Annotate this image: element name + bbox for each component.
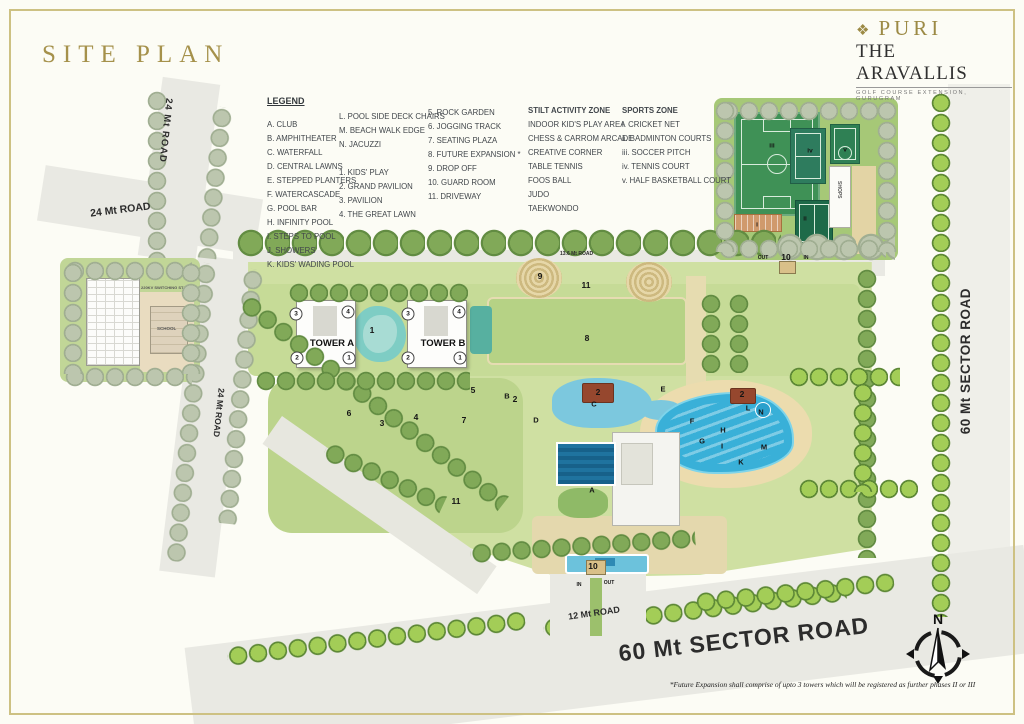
legend-item: J. SHOWERS	[267, 244, 356, 258]
legend-item: i. CRICKET NET	[622, 118, 731, 132]
tree-row	[852, 382, 874, 492]
tower-a-core	[313, 306, 337, 336]
club-roof-detail	[621, 443, 653, 485]
legend-item: JUDO	[528, 188, 633, 202]
legend-item: 5. ROCK GARDEN	[428, 106, 521, 120]
tower-b-core	[424, 306, 448, 336]
tree-row	[288, 282, 468, 304]
brand-name-text: PURI	[878, 16, 942, 40]
legend-item: ii. BADMINTON COURTS	[622, 132, 731, 146]
tree-row	[728, 293, 750, 373]
basketball-half-court	[830, 124, 860, 164]
legend: LEGEND A. CLUBB. AMPHITHEATERC. WATERFAL…	[265, 92, 745, 222]
soccer-goal-box-bottom	[763, 196, 791, 209]
page-title: SITE PLAN	[42, 41, 229, 69]
tree-row	[255, 370, 470, 392]
lap-pool	[556, 442, 616, 486]
legend-item: FOOS BALL	[528, 174, 633, 188]
school-label: SCHOOL	[157, 326, 176, 331]
legend-item: TAEKWONDO	[528, 202, 633, 216]
legend-item: 7. SEATING PLAZA	[428, 134, 521, 148]
drop-off-circle	[626, 262, 672, 302]
tree-row	[62, 262, 84, 374]
legend-item: 1. KIDS' PLAY	[339, 166, 416, 180]
basketball-arc	[838, 146, 852, 160]
future-expansion-footnote: *Future Expansion shall comprise of upto…	[630, 680, 1015, 689]
brand-tagline: GOLF COURSE EXTENSION, GURUGRAM	[856, 90, 1012, 102]
legend-item: 2. GRAND PAVILION	[339, 180, 416, 194]
great-lawn-8	[487, 297, 687, 365]
tennis-court	[790, 128, 826, 184]
legend-item: 11. DRIVEWAY	[428, 190, 521, 204]
legend-item: 10. GUARD ROOM	[428, 176, 521, 190]
legend-title: LEGEND	[267, 96, 305, 106]
diamond-icon: ❖	[856, 23, 873, 39]
legend-item: v. HALF BASKETBALL COURT	[622, 174, 731, 188]
legend-item: 6. JOGGING TRACK	[428, 120, 521, 134]
legend-item: CREATIVE CORNER	[528, 146, 633, 160]
stilt-zone-items: INDOOR KID'S PLAY AREACHESS & CARROM ARC…	[528, 118, 633, 216]
compass-n-label: N	[933, 611, 943, 627]
tree-row	[718, 238, 886, 260]
legend-col-numbers2: 5. ROCK GARDEN6. JOGGING TRACK7. SEATING…	[428, 106, 521, 204]
tree-row	[180, 262, 202, 374]
tree-row	[788, 366, 900, 388]
club-building	[612, 432, 680, 526]
north-arrow-icon: N	[900, 610, 976, 686]
sports-zone-title: SPORTS ZONE	[622, 104, 731, 118]
legend-item: INDOOR KID'S PLAY AREA	[528, 118, 633, 132]
legend-stilt-zone: STILT ACTIVITY ZONE INDOOR KID'S PLAY AR…	[528, 104, 633, 216]
site-plan-poster: SITE PLAN ❖PURI THE ARAVALLIS GOLF COURS…	[0, 0, 1024, 724]
tree-row	[700, 293, 722, 373]
road-label-13-6mt: 13.6 Mt ROAD	[560, 251, 593, 257]
sports-zone-items: i. CRICKET NETii. BADMINTON COURTSiii. S…	[622, 118, 731, 188]
grand-pavilion	[582, 383, 614, 403]
brand-logo: ❖PURI THE ARAVALLIS GOLF COURSE EXTENSIO…	[856, 16, 1012, 102]
legend-col-numbers1: 1. KIDS' PLAY2. GRAND PAVILION3. PAVILIO…	[339, 166, 416, 222]
club-lawn	[558, 488, 608, 518]
guard-room-north	[779, 261, 796, 274]
legend-item: 3. PAVILION	[339, 194, 416, 208]
tower-b-label: TOWER B	[411, 338, 475, 349]
legend-item: CHESS & CARROM ARCADE	[528, 132, 633, 146]
tennis-net-line	[795, 156, 821, 157]
shops-label: SHOPS	[836, 181, 842, 199]
legend-sports-zone: SPORTS ZONE i. CRICKET NETii. BADMINTON …	[622, 104, 731, 188]
pavilion-2-east	[730, 388, 756, 404]
legend-item: iv. TENNIS COURT	[622, 160, 731, 174]
project-name: THE ARAVALLIS	[856, 41, 1012, 88]
kids-play-inner	[363, 315, 397, 353]
tree-row	[930, 92, 952, 617]
shops-building: SHOPS	[829, 166, 851, 228]
stilt-zone-title: STILT ACTIVITY ZONE	[528, 104, 633, 118]
legend-item: iii. SOCCER PITCH	[622, 146, 731, 160]
soccer-center-circle	[767, 154, 787, 174]
kids-play-area	[354, 306, 406, 362]
road-label-60mt-right: 60 Mt SECTOR ROAD	[958, 288, 973, 434]
west-building-footprint	[86, 278, 140, 366]
compass: N	[900, 610, 976, 686]
tree-row	[876, 100, 898, 252]
legend-item: 8. FUTURE EXPANSION *	[428, 148, 521, 162]
tower-b-building	[407, 300, 467, 368]
brand-name: ❖PURI	[856, 16, 1012, 41]
jacuzzi	[755, 402, 771, 418]
tower-a-label: TOWER A	[300, 338, 364, 349]
legend-item: I. STEPS TO POOL	[267, 230, 356, 244]
legend-item: 4. THE GREAT LAWN	[339, 208, 416, 222]
legend-item: TABLE TENNIS	[528, 160, 633, 174]
legend-item: K. KIDS' WADING POOL	[267, 258, 356, 272]
legend-item: 9. DROP OFF	[428, 162, 521, 176]
drop-off-circle	[516, 258, 562, 298]
guard-room-south	[586, 560, 606, 575]
